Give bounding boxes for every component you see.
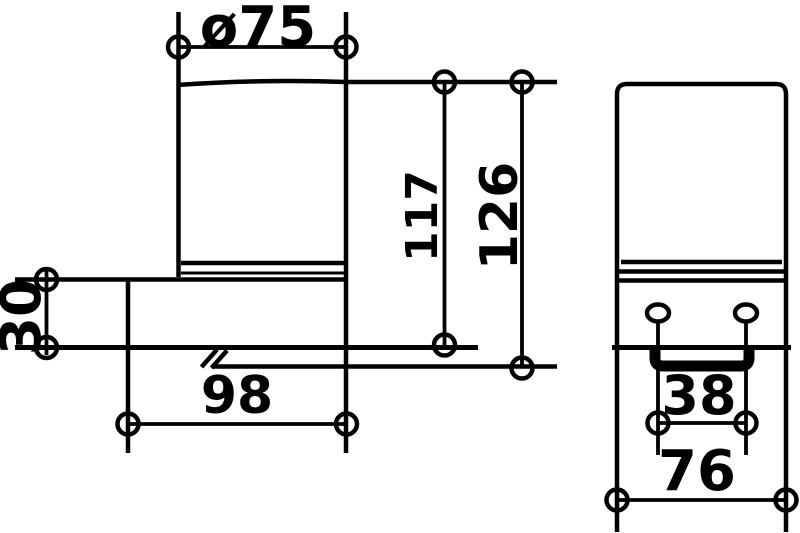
dim-bracket-width: 76 <box>607 439 797 511</box>
dim-total-height: 126 <box>470 72 533 379</box>
dim-label-cup-diameter: ø75 <box>200 0 316 60</box>
dim-label-bracket-depth: 98 <box>201 366 273 426</box>
dim-bracket-depth: 98 <box>118 366 358 435</box>
screw-slot-left <box>647 305 669 322</box>
dim-label-bracket-height: 30 <box>0 279 53 356</box>
dim-label-bracket-width: 76 <box>658 439 736 504</box>
screw-slot-right <box>735 305 757 322</box>
dim-label-slot-spacing: 38 <box>661 364 736 427</box>
dim-cup-diameter: ø75 <box>168 0 357 60</box>
dim-slot-spacing: 38 <box>648 364 757 434</box>
cup-rim-line <box>177 81 557 85</box>
drawing-canvas: ø75 30 117 126 <box>0 0 800 533</box>
dim-label-total-height: 126 <box>470 162 530 271</box>
dim-bracket-height: 30 <box>0 269 57 358</box>
dim-cup-height: 117 <box>397 72 455 356</box>
technical-drawing-page: ø75 30 117 126 <box>0 0 800 533</box>
dimensions: ø75 30 117 126 <box>0 0 797 511</box>
dim-label-cup-height: 117 <box>397 170 448 262</box>
